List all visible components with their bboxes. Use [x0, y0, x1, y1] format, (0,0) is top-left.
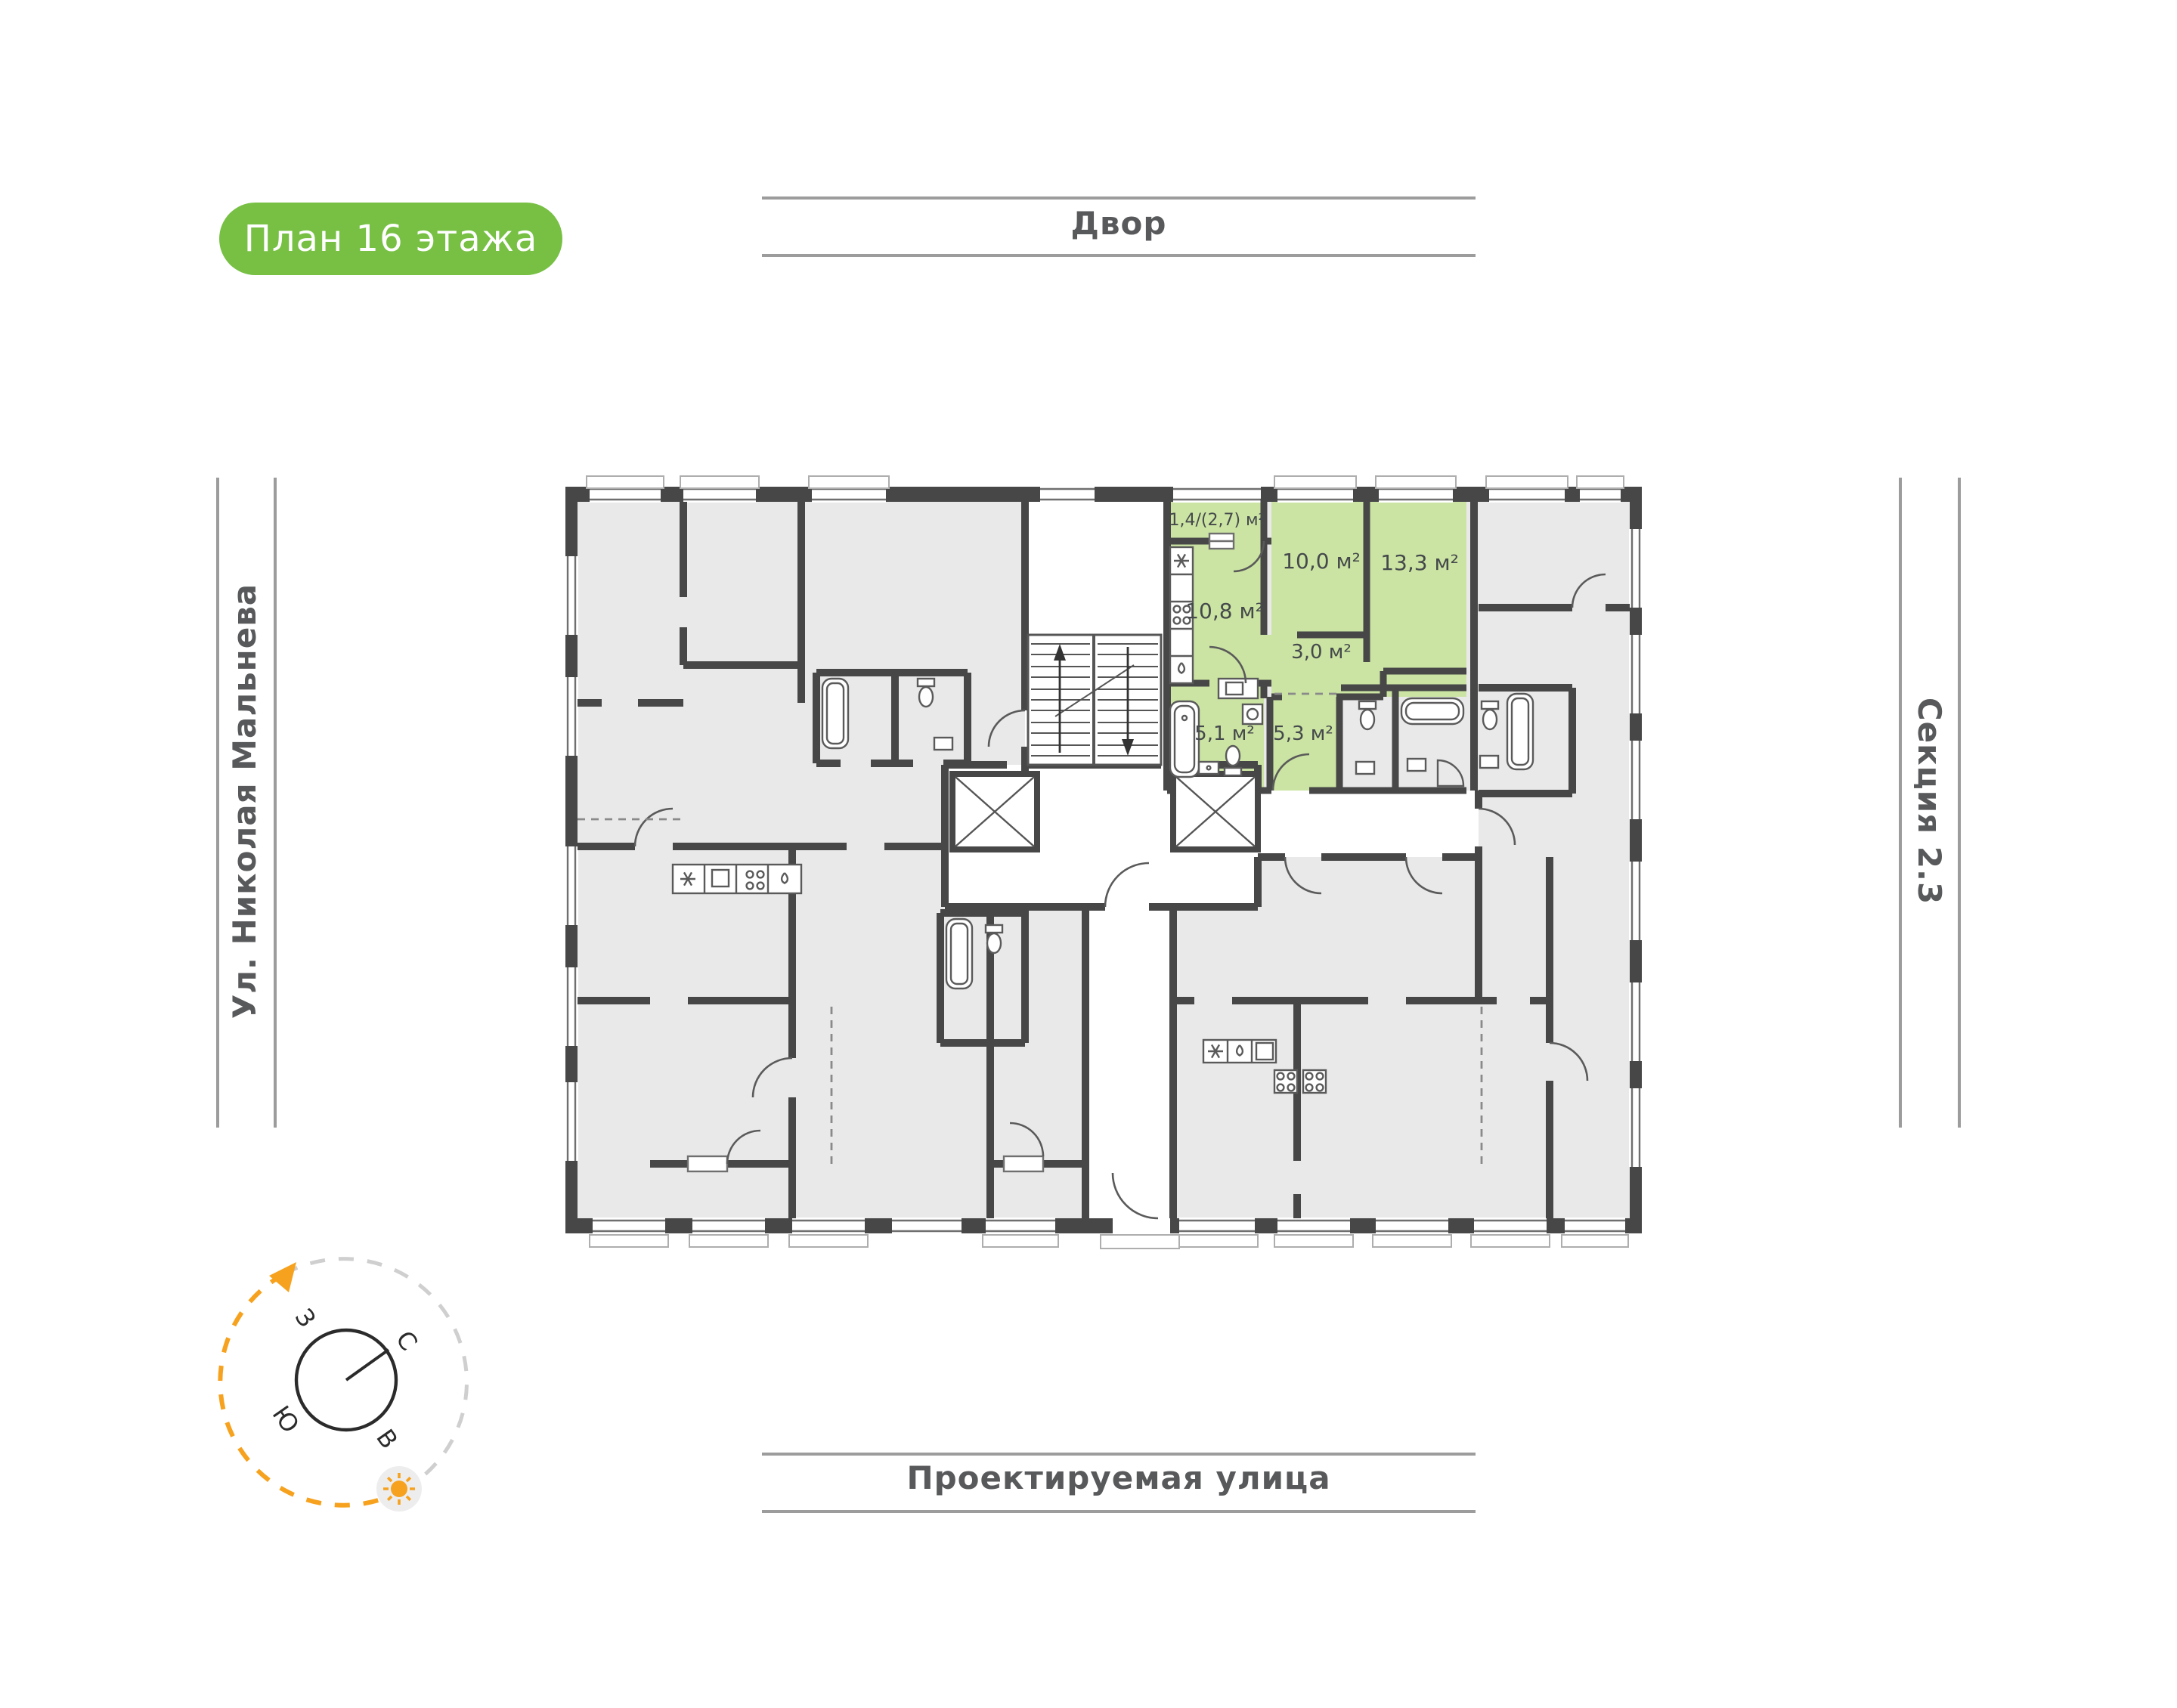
compass-arrow-icon [269, 1262, 296, 1292]
floor-plan-page: План 16 этажа Двор Проектируемая улица У… [0, 0, 2177, 1708]
room-label-hallway: 3,0 м² [1291, 642, 1352, 664]
room-label-room-2: 13,3 м² [1380, 552, 1459, 576]
room-label-kitchen: 10,8 м² [1185, 600, 1264, 624]
room-label-balcony: 1,4/(2,7) м² [1169, 510, 1265, 530]
staircase [1028, 635, 1161, 765]
compass-rose [181, 1224, 514, 1542]
room-label-bathroom: 5,1 м² [1194, 723, 1255, 746]
room-label-room-1: 10,0 м² [1282, 550, 1361, 574]
sun-icon [383, 1473, 415, 1505]
room-label-hall: 5,3 м² [1273, 723, 1333, 746]
